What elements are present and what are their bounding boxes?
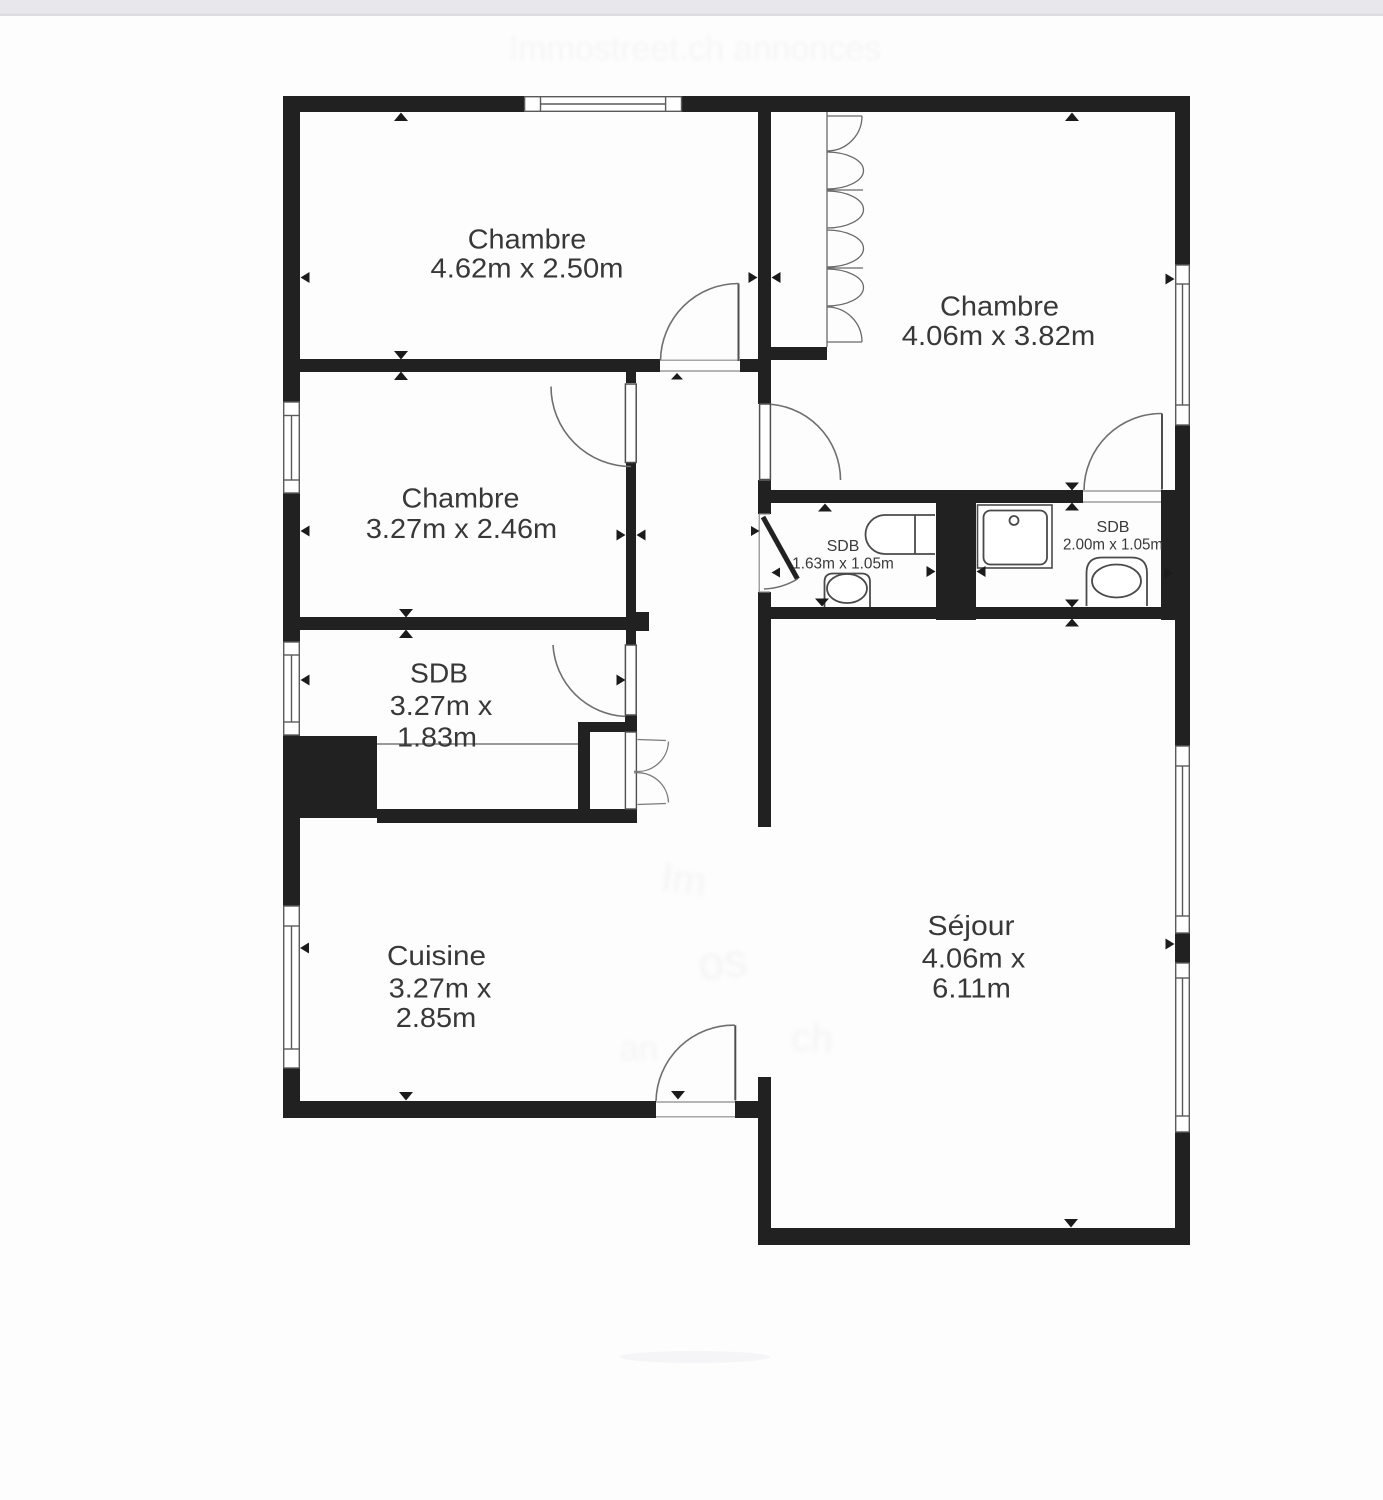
svg-text:Chambre: Chambre [468,224,587,255]
svg-text:an: an [620,1030,658,1068]
svg-text:4.62m x 2.50m: 4.62m x 2.50m [431,252,624,283]
svg-text:SDB: SDB [827,538,860,555]
svg-text:Cuisine: Cuisine [387,940,486,971]
svg-text:6.11m: 6.11m [932,973,1011,1004]
svg-text:ch: ch [789,1015,835,1063]
svg-text:Im: Im [659,855,709,905]
svg-text:2.00m x 1.05m: 2.00m x 1.05m [1063,537,1163,554]
svg-text:1.63m x 1.05m: 1.63m x 1.05m [792,556,894,573]
svg-text:4.06m x 3.82m: 4.06m x 3.82m [902,320,1095,351]
svg-text:3.27m x: 3.27m x [390,690,493,721]
svg-text:3.27m x 2.46m: 3.27m x 2.46m [366,513,557,544]
svg-text:3.27m x: 3.27m x [389,973,492,1004]
svg-text:SDB: SDB [1097,519,1130,536]
svg-text:1.83m: 1.83m [397,722,477,753]
svg-text:Séjour: Séjour [928,910,1015,941]
svg-text:os: os [696,933,750,990]
svg-text:Chambre: Chambre [940,291,1059,322]
svg-text:SDB: SDB [410,658,468,689]
svg-text:Chambre: Chambre [402,483,520,514]
svg-text:Immostreet.ch annonces: Immostreet.ch annonces [509,30,881,68]
svg-text:2.85m: 2.85m [396,1002,477,1033]
svg-text:4.06m x: 4.06m x [922,943,1026,974]
